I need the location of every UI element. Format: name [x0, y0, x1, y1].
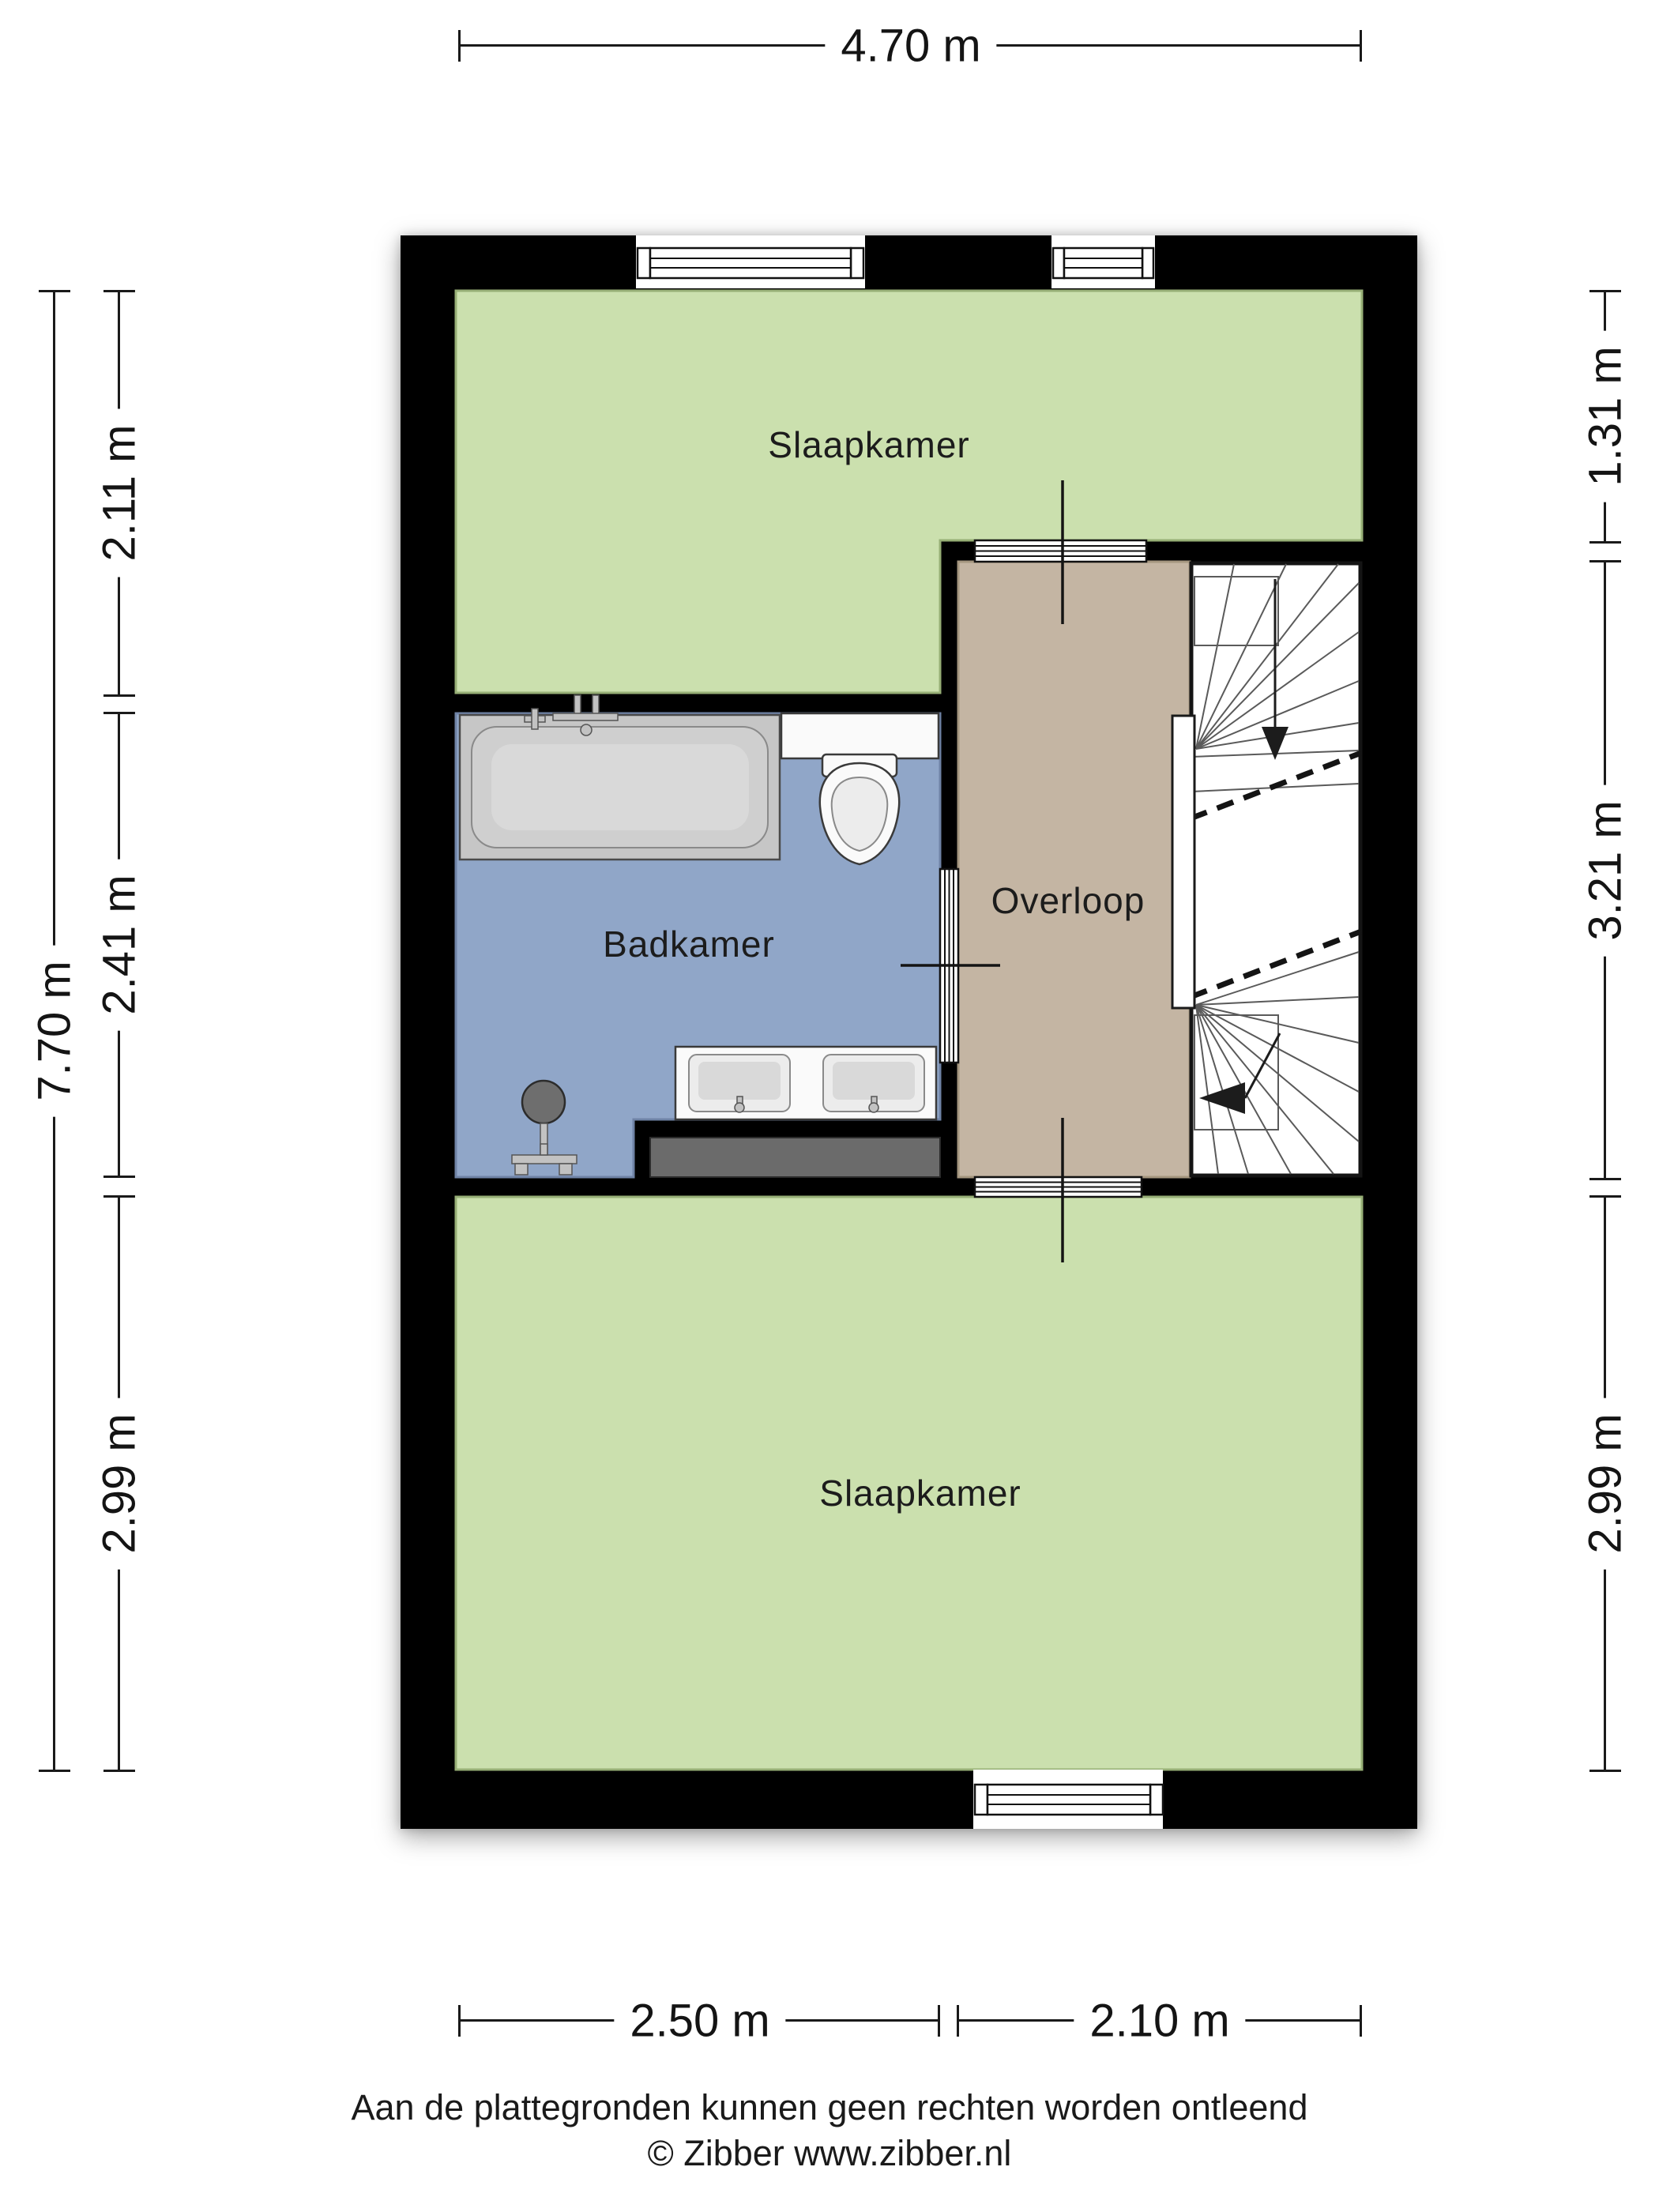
dimension-left-seg2-label: 2.41 m [93, 859, 146, 1030]
window-bottom [973, 1770, 1163, 1829]
dimension-bottom-left-label: 2.50 m [614, 1995, 785, 2048]
wall-niche [781, 713, 939, 758]
window-top-right [1051, 235, 1155, 288]
floorplan-page: Slaapkamer Badkamer Overloop Slaapkamer … [0, 0, 1659, 2212]
dimension-right-seg3-label: 2.99 m [1579, 1398, 1632, 1569]
footer-disclaimer: Aan de plattegronden kunnen geen rechten… [0, 2087, 1659, 2128]
room-label-bedroom-top: Slaapkamer [768, 423, 969, 466]
lowered-ledge [650, 1138, 940, 1177]
bathtub [460, 715, 780, 860]
room-label-bathroom: Badkamer [603, 923, 775, 965]
room-label-landing: Overloop [991, 879, 1145, 922]
stair-handrail [1172, 716, 1194, 1008]
landing-floor [958, 562, 1190, 1177]
window-top-left [636, 235, 865, 288]
room-label-bedroom-bottom: Slaapkamer [819, 1472, 1021, 1514]
vanity-double-sink [675, 1047, 936, 1119]
dimension-bottom-right-label: 2.10 m [1074, 1995, 1245, 2048]
floorplan-drawing [401, 235, 1417, 1829]
dimension-right-seg2-label: 3.21 m [1579, 784, 1632, 956]
dimension-left-total-label: 7.70 m [28, 945, 81, 1116]
dimension-top-label: 4.70 m [825, 20, 996, 73]
footer-copyright: © Zibber www.zibber.nl [0, 2133, 1659, 2174]
dimension-right-seg1-label: 1.31 m [1579, 330, 1632, 502]
staircase [1191, 563, 1361, 1176]
dimension-left-seg3-label: 2.99 m [93, 1398, 146, 1569]
dimension-left-seg1-label: 2.11 m [93, 408, 146, 577]
